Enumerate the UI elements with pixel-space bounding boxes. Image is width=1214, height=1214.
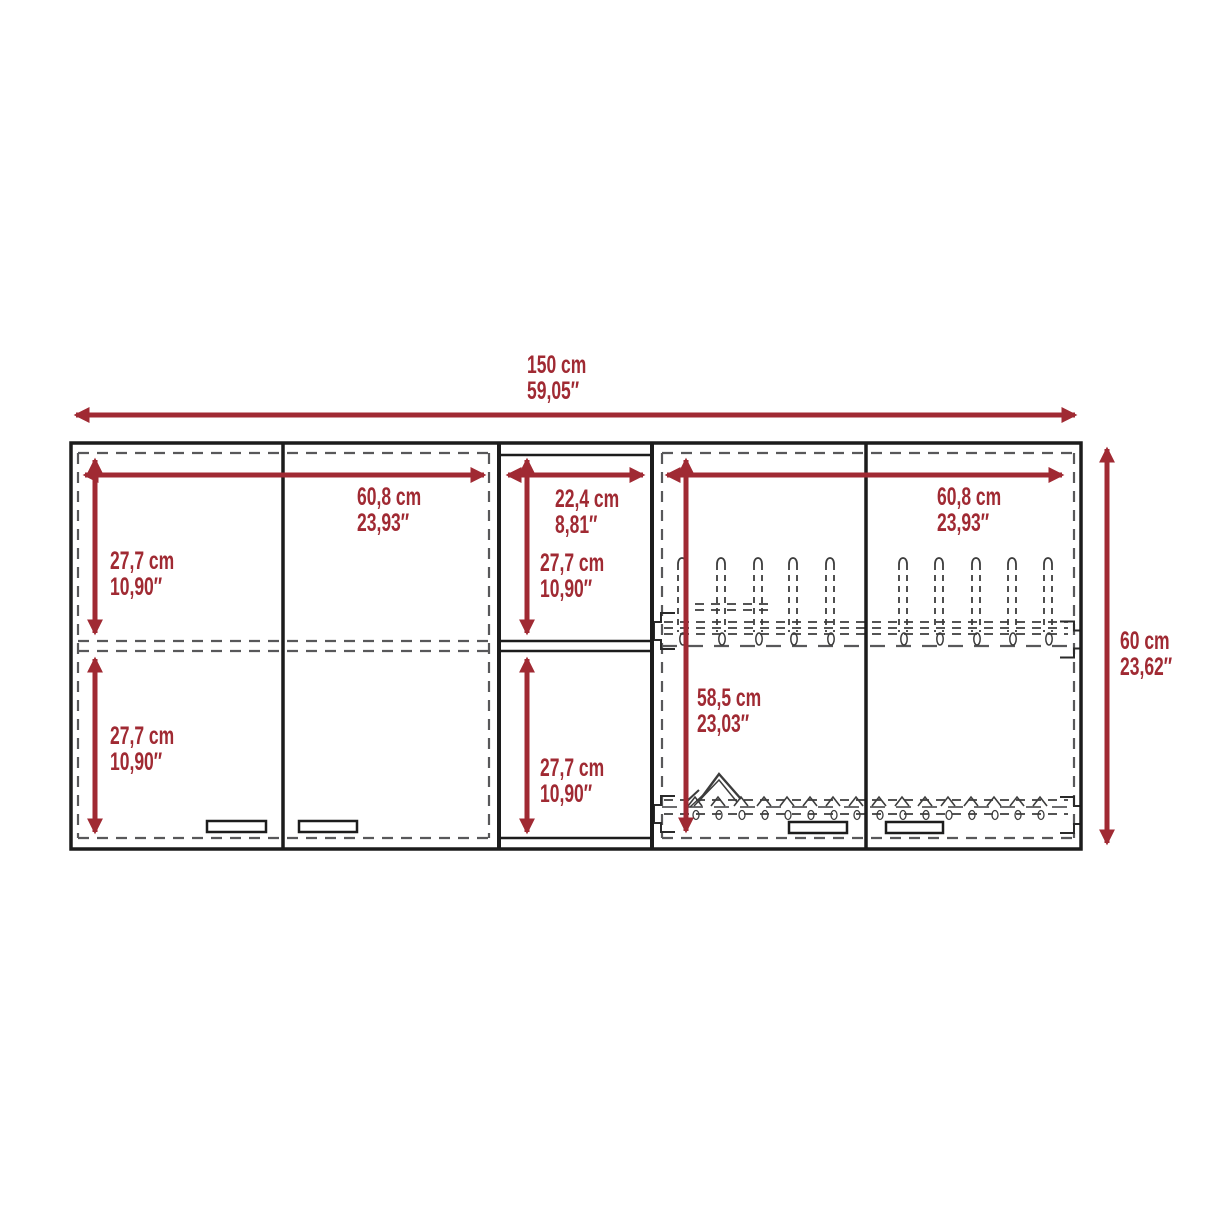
center-bottom-height-in: 10,90″ [540, 781, 604, 807]
rack-rail-bracket-left [654, 613, 675, 649]
right-door-width-in: 23,93″ [937, 510, 1001, 536]
center-bottom-height-cm: 27,7 cm [540, 755, 604, 781]
center-top-height-cm: 27,7 cm [540, 550, 604, 576]
handle-left-door-2 [299, 821, 357, 832]
handle-left-door-1 [207, 821, 266, 832]
left-top-height-in: 10,90″ [110, 574, 174, 600]
rack-rail-bracket-bottom-right [1060, 797, 1081, 833]
center-width-cm: 22,4 cm [555, 486, 619, 512]
overall-width-in: 59,05″ [527, 378, 586, 404]
handle-right-door-2 [886, 822, 943, 833]
dim-label-center-width: 22,4 cm 8,81″ [555, 486, 619, 538]
dim-label-center-top-height: 27,7 cm 10,90″ [540, 550, 604, 602]
center-top-height-in: 10,90″ [540, 576, 604, 602]
dim-label-left-top-height: 27,7 cm 10,90″ [110, 548, 174, 600]
rack-rail-bracket-right [1060, 622, 1081, 658]
overall-height-in: 23,62″ [1120, 654, 1172, 680]
left-top-height-cm: 27,7 cm [110, 548, 174, 574]
right-interior-height-cm: 58,5 cm [697, 685, 761, 711]
dim-label-right-door-width: 60,8 cm 23,93″ [937, 484, 1001, 536]
left-bottom-height-in: 10,90″ [110, 749, 174, 775]
center-width-in: 8,81″ [555, 512, 619, 538]
left-door-width-cm: 60,8 cm [357, 484, 421, 510]
handle-right-door-1 [789, 822, 847, 833]
left-bottom-height-cm: 27,7 cm [110, 723, 174, 749]
right-interior-height-in: 23,03″ [697, 711, 761, 737]
right-door-width-cm: 60,8 cm [937, 484, 1001, 510]
overall-width-cm: 150 cm [527, 352, 586, 378]
dim-label-left-door-width: 60,8 cm 23,93″ [357, 484, 421, 536]
left-door-width-in: 23,93″ [357, 510, 421, 536]
dim-label-overall-width: 150 cm 59,05″ [527, 352, 586, 404]
cabinet-dimension-diagram: 150 cm 59,05″ 60,8 cm 23,93″ 22,4 cm 8,8… [0, 0, 1214, 1214]
dim-label-right-interior-height: 58,5 cm 23,03″ [697, 685, 761, 737]
dim-label-center-bottom-height: 27,7 cm 10,90″ [540, 755, 604, 807]
door-handles [207, 821, 943, 833]
overall-height-cm: 60 cm [1120, 628, 1172, 654]
dim-label-left-bottom-height: 27,7 cm 10,90″ [110, 723, 174, 775]
dim-label-overall-height: 60 cm 23,62″ [1120, 628, 1172, 680]
diagram-linework [0, 0, 1214, 1214]
